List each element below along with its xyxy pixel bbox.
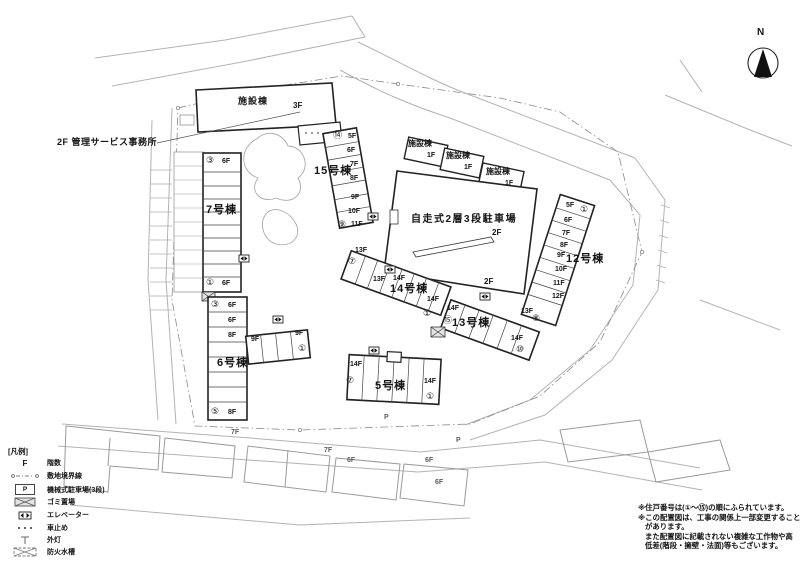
- bldg15-name: 15号棟: [314, 166, 352, 177]
- north-arrow-icon: [748, 48, 778, 78]
- bldg15-floor-6: 11F: [351, 221, 363, 228]
- bldg12-bottom-no: ⑧: [532, 314, 540, 323]
- legend-label: 外灯: [47, 535, 61, 545]
- bldg6-floor2: 6F: [228, 317, 236, 324]
- bldg15-floor-0: 5F: [348, 133, 356, 140]
- facility-top-floor: 3F: [293, 102, 302, 110]
- facility-2-floor: 1F: [464, 164, 472, 171]
- bldg5-right-floor: 14F: [424, 378, 436, 385]
- road-p-mark: P: [456, 437, 461, 444]
- car-stop-icon: [10, 525, 40, 531]
- bldg6-name: 6号棟: [217, 358, 248, 369]
- bldg6-wing-floor-a: 9F: [251, 336, 259, 343]
- facility-top-name: 施設棟: [238, 97, 268, 106]
- bldg15-top-no: ⑭: [333, 131, 342, 140]
- facility-3-floor: 1F: [505, 180, 513, 187]
- note-line: 低差(階段・擁壁・法面)等もございます。: [638, 541, 798, 551]
- legend-row-trash: ゴミ置場: [10, 497, 75, 507]
- legend-title: [凡例]: [8, 446, 28, 457]
- bldg14-name: 14号棟: [390, 284, 428, 295]
- boundary-line-icon: [10, 472, 40, 480]
- note-line: また配置図に記載されない複雑な工作物や高: [638, 532, 798, 542]
- legend-label: エレベーター: [47, 510, 89, 520]
- bldg12-floor-2: 7F: [562, 230, 570, 237]
- mechanical-parking-rows: [174, 152, 203, 292]
- legend-row-elevator: エレベーター: [10, 510, 89, 520]
- neighbor-floor: 7F: [231, 429, 239, 436]
- office-label: 2F 管理サービス事務所: [57, 138, 157, 147]
- facility-2-name: 施設棟: [446, 152, 470, 160]
- facility-3-name: 施設棟: [486, 168, 510, 176]
- bldg14-right-floor: 14F: [427, 296, 439, 303]
- elevator-icon: [239, 255, 249, 262]
- bldg12-name: 12号棟: [566, 254, 604, 265]
- bldg5-left-floor: 14F: [350, 361, 362, 368]
- bldg15-floor-1: 6F: [347, 147, 355, 154]
- site-plan: N 2F 管理サービス事務所 施設棟 3F 施設棟 1F 施設棟 1F 施設棟 …: [0, 0, 800, 575]
- neighbor-floor: 6F: [347, 457, 355, 464]
- neighbor-floor: 6F: [425, 457, 433, 464]
- note-line: ※この配置図は、工事の関係上一部変更すること: [638, 513, 798, 523]
- bldg14-mid-floor-b: 14F: [393, 275, 405, 282]
- bldg7-top-no: ③: [206, 156, 214, 165]
- bldg7-bottom-floor: 6F: [222, 280, 230, 287]
- floor-symbol: F: [10, 459, 40, 468]
- bldg14-mid-floor-a: 13F: [373, 276, 385, 283]
- bldg6-top-floor: 6F: [228, 302, 236, 309]
- legend-row-fire-tank: 防火水槽: [10, 547, 75, 557]
- elevator-icon: [480, 293, 490, 300]
- bldg6-bottom-no: ⑤: [211, 407, 219, 416]
- bldg12-floor-7: 12F: [552, 293, 564, 300]
- facility-1-name: 施設棟: [408, 140, 432, 148]
- bldg12-floor-4: 9F: [557, 252, 565, 259]
- bldg6-wing-floor-b: 9F: [295, 330, 303, 337]
- legend-label: ゴミ置場: [47, 497, 75, 507]
- parking-structure-name: 自走式2層3段駐車場: [411, 215, 517, 225]
- bldg5-right-no: ①: [426, 392, 434, 401]
- bldg6-floor3: 8F: [228, 332, 236, 339]
- bldg7-bottom-no: ①: [206, 278, 214, 287]
- bldg5-left-no: ⑦: [346, 376, 354, 385]
- elevator-icon: [369, 347, 379, 354]
- elevator-icon: [368, 213, 378, 220]
- bldg13-name: 13号棟: [452, 318, 490, 329]
- neighbor-buildings: [64, 420, 730, 506]
- bldg6-bottom-floor: 8F: [228, 409, 236, 416]
- outdoor-light-icon: [10, 535, 40, 545]
- slope-hatch: [656, 205, 670, 283]
- bldg12-floor-3: 8F: [560, 242, 568, 249]
- legend-row-boundary: 敷地境界線: [10, 471, 82, 481]
- note-line: があります。: [638, 522, 798, 532]
- road-p-mark: P: [384, 414, 389, 421]
- legend-row-mech-parking: P 機械式駐車場(3段): [10, 484, 105, 495]
- bldg12-floor-0: 5F: [566, 202, 574, 209]
- neighbor-floor: 6F: [435, 479, 443, 486]
- bldg12-floor-1: 6F: [564, 217, 572, 224]
- bldg7-name: 7号棟: [206, 205, 237, 216]
- bldg13-left-floor: 14F: [447, 305, 459, 312]
- bldg13-left-no: ⑮: [443, 316, 452, 325]
- legend-label: 車止め: [47, 523, 68, 533]
- parking-structure-floor2: 2F: [484, 278, 493, 286]
- neighbor-floor: 7F: [324, 447, 332, 454]
- legend-label: 階数: [47, 458, 61, 468]
- bldg12-floor-6: 11F: [553, 280, 565, 287]
- bldg15-floor-5: 10F: [348, 208, 360, 215]
- elevator-icon: [273, 316, 283, 323]
- notes-block: ※住戸番号は(①～⑮)の順にふられています。 ※この配置図は、工事の関係上一部変…: [638, 503, 798, 551]
- legend-row-car-stop: 車止め: [10, 523, 68, 533]
- bldg13-right-floor: 14F: [511, 335, 523, 342]
- bldg15-floor-4: 9F: [351, 194, 359, 201]
- legend-label: 機械式駐車場(3段): [47, 485, 105, 495]
- legend-row-floors: F 階数: [10, 458, 61, 468]
- bldg6-wing-no: ①: [298, 344, 306, 353]
- bldg14-left-no: ⑦: [348, 257, 356, 266]
- bldg12-floor-5: 10F: [555, 266, 567, 273]
- parking-structure-floor: 2F: [492, 229, 501, 237]
- bldg6-top-no: ③: [211, 300, 219, 309]
- elevator-icon: [385, 266, 395, 273]
- bldg14-left-floor: 13F: [355, 247, 367, 254]
- bldg13-right-no: ⑩: [516, 345, 524, 354]
- legend-label: 防火水槽: [47, 547, 75, 557]
- bldg15-bottom-no: ⑨: [338, 220, 346, 229]
- bldg5-name: 5号棟: [375, 381, 406, 392]
- bldg12-top-no: ①: [580, 205, 588, 214]
- legend-row-light: 外灯: [10, 535, 61, 545]
- legend-label: 敷地境界線: [47, 471, 82, 481]
- bldg14-right-no: ①: [423, 309, 431, 318]
- facility-1-floor: 1F: [427, 152, 435, 159]
- fire-tank-icon: [10, 547, 40, 557]
- pond: [244, 133, 305, 244]
- note-line: ※住戸番号は(①～⑮)の順にふられています。: [638, 503, 798, 513]
- trash-icon: [10, 497, 40, 507]
- elevator-icon: [10, 511, 40, 520]
- north-label: N: [757, 28, 764, 38]
- mech-parking-icon: P: [10, 484, 40, 495]
- trash-area-icon: [431, 327, 445, 337]
- bldg7-top-floor: 6F: [222, 158, 230, 165]
